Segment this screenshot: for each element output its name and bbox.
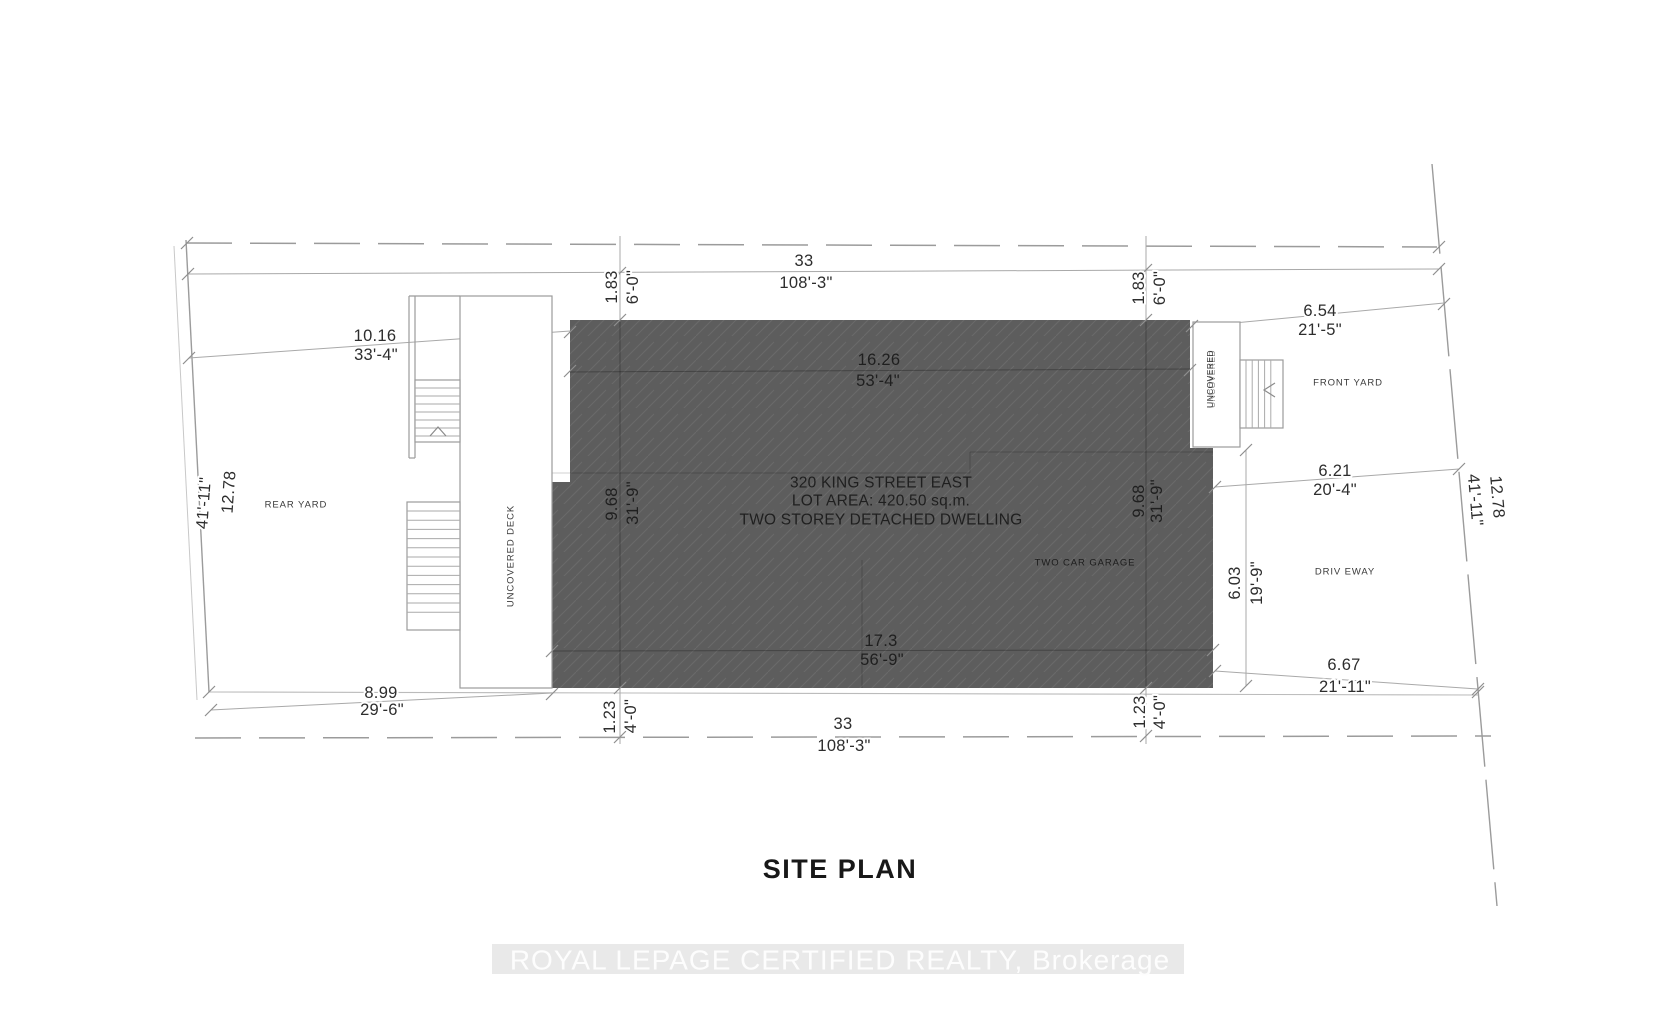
driveway-label: DRIV EWAY — [1315, 567, 1375, 578]
dim-setback-bottom-left-m: 1.23 — [601, 700, 619, 733]
dim-lot-width-bottom-m: 33 — [834, 715, 853, 733]
page-title: SITE PLAN — [763, 854, 918, 884]
dim-lot-depth-right-m: 12.78 — [1486, 475, 1508, 519]
front-yard-label: FRONT YARD — [1313, 378, 1383, 389]
site-plan-drawing: 33 108'-3" 16.26 53'-4" 10.16 33'-4" 6.5… — [0, 0, 1680, 1019]
dim-setback-top-right-m: 1.83 — [1130, 271, 1148, 304]
boundary-bottom — [209, 692, 1478, 695]
dim-garage-depth-ft: 19'-9" — [1248, 561, 1266, 605]
dim-setback-top-left-ft: 6'-0" — [624, 270, 642, 304]
boundary-left-offset — [174, 246, 197, 700]
deck-outline — [460, 296, 552, 688]
dim-lot-width-bottom-ft: 108'-3" — [817, 737, 870, 755]
boundary-left — [186, 240, 209, 692]
building-address: 320 KING STREET EAST — [790, 475, 972, 492]
dim-setback-bottom-right-ft: 4'-0" — [1151, 695, 1169, 729]
porch-label: UNCOVERED — [1205, 350, 1215, 408]
dim-setback-bottom-right-m: 1.23 — [1131, 695, 1149, 728]
building-type: TWO STOREY DETACHED DWELLING — [740, 512, 1023, 529]
dim-front-top-ft: 21'-5" — [1298, 321, 1342, 339]
dim-lot-depth-left-ft: 41'-11" — [193, 476, 215, 529]
dim-setback-top-right-ft: 6'-0" — [1151, 271, 1169, 305]
dim-house-depth-left-m: 9.68 — [603, 487, 621, 520]
dim-house-width-top-ft: 53'-4" — [856, 372, 900, 390]
deck-upper-stairs — [415, 380, 460, 442]
dim-rear-bottom-m: 8.99 — [364, 684, 397, 702]
dim-front-bottom-m: 6.67 — [1327, 656, 1360, 674]
dim-rear-bottom-ft: 29'-6" — [360, 701, 404, 719]
watermark-text: ROYAL LEPAGE CERTIFIED REALTY, Brokerage — [510, 945, 1170, 976]
porch-outline — [1193, 322, 1240, 447]
dim-house-depth-left-ft: 31'-9" — [624, 481, 642, 525]
dim-house-width-top-m: 16.26 — [858, 351, 901, 369]
dim-house-width-bottom-ft: 56'-9" — [860, 651, 904, 669]
site-plan-page: 33 108'-3" 16.26 53'-4" 10.16 33'-4" 6.5… — [0, 0, 1680, 1019]
dim-lot-width-top-m: 33 — [795, 252, 814, 270]
dim-house-width-bottom-m: 17.3 — [864, 632, 897, 650]
dim-lot-depth-right-ft: 41'-11" — [1464, 473, 1486, 526]
rear-yard-label: REAR YARD — [265, 500, 328, 511]
building-lot-area: LOT AREA: 420.50 sq.m. — [792, 493, 970, 510]
dim-front-top-m: 6.54 — [1303, 302, 1336, 320]
uncovered-deck — [407, 296, 552, 688]
dim-front-mid-m: 6.21 — [1318, 462, 1351, 480]
watermark: ROYAL LEPAGE CERTIFIED REALTY, Brokerage — [492, 944, 1184, 976]
dim-setback-bottom-left-ft: 4'-0" — [622, 699, 640, 733]
dim-house-depth-right-ft: 31'-9" — [1148, 479, 1166, 523]
dim-setback-top-left-m: 1.83 — [603, 270, 621, 303]
deck-label: UNCOVERED DECK — [506, 505, 517, 607]
boundary-top — [186, 243, 1437, 247]
dim-house-depth-right-m: 9.68 — [1130, 484, 1148, 517]
dim-front-mid-ft: 20'-4" — [1313, 481, 1357, 499]
dim-garage-depth-m: 6.03 — [1226, 566, 1244, 599]
garage-label: TWO CAR GARAGE — [1035, 558, 1136, 569]
dim-front-bottom-ft: 21'-11" — [1319, 678, 1371, 696]
boundary-right — [1432, 164, 1497, 906]
dim-rear-top-ft: 33'-4" — [354, 346, 398, 364]
dim-rear-top-m: 10.16 — [354, 327, 397, 345]
dim-lot-depth-left-m: 12.78 — [219, 470, 240, 514]
dim-lot-width-top-ft: 108'-3" — [779, 274, 832, 292]
